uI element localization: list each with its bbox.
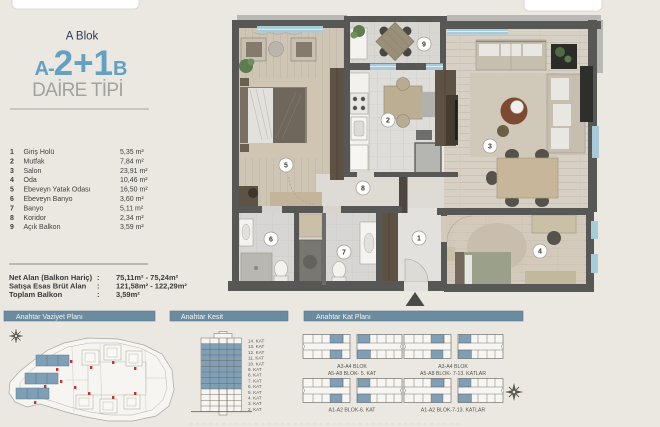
- svg-text:7. KAT: 7. KAT: [248, 378, 262, 383]
- svg-text:3: 3: [488, 143, 492, 150]
- svg-text:5,11 m²: 5,11 m²: [120, 205, 144, 212]
- svg-text:Banyo: Banyo: [24, 205, 44, 212]
- svg-text:Anahtar Vaziyet Planı: Anahtar Vaziyet Planı: [16, 314, 83, 321]
- svg-text:5,35 m²: 5,35 m²: [120, 149, 144, 156]
- svg-text:DAİRE TİPİ: DAİRE TİPİ: [32, 80, 123, 101]
- svg-text:A5-A8 BLOK- 7-13. KATLAR: A5-A8 BLOK- 7-13. KATLAR: [420, 371, 486, 377]
- svg-text:2: 2: [10, 158, 14, 165]
- svg-text:23,91 m²: 23,91 m²: [120, 168, 148, 175]
- svg-text:8: 8: [10, 215, 14, 222]
- svg-text:2: 2: [386, 117, 390, 124]
- svg-text:A1-A2 BLOK-6. KAT: A1-A2 BLOK-6. KAT: [329, 408, 377, 414]
- svg-text:Anahtar Kat Planı: Anahtar Kat Planı: [316, 314, 371, 321]
- svg-text:7: 7: [10, 205, 14, 212]
- svg-text:10. KAT: 10. KAT: [248, 361, 264, 366]
- svg-text:Oda: Oda: [24, 177, 37, 184]
- svg-text:16,50 m²: 16,50 m²: [120, 187, 148, 194]
- svg-text:1: 1: [417, 235, 421, 242]
- svg-text:6: 6: [10, 196, 14, 203]
- svg-text:7: 7: [342, 249, 346, 256]
- svg-text:6. KAT: 6. KAT: [248, 384, 262, 389]
- svg-text:9: 9: [10, 224, 14, 231]
- svg-text:8. KAT: 8. KAT: [248, 373, 262, 378]
- svg-text:5. KAT: 5. KAT: [248, 390, 262, 395]
- svg-text:Anahtar Kesit: Anahtar Kesit: [181, 314, 223, 321]
- svg-text:5: 5: [10, 187, 14, 194]
- svg-text:Salon: Salon: [24, 168, 42, 175]
- svg-text:1: 1: [10, 149, 14, 156]
- svg-text:7,84 m²: 7,84 m²: [120, 158, 144, 165]
- svg-text:A Blok: A Blok: [66, 31, 99, 43]
- svg-text:5: 5: [284, 162, 288, 169]
- svg-text::: :: [97, 290, 100, 299]
- svg-text:4: 4: [538, 248, 542, 255]
- svg-text:A5-A8 BLOK- 5. KAT: A5-A8 BLOK- 5. KAT: [328, 371, 377, 377]
- svg-text:13. KAT: 13. KAT: [248, 344, 264, 349]
- svg-text:3. KAT: 3. KAT: [248, 401, 262, 406]
- svg-text:Koridor: Koridor: [24, 215, 47, 222]
- svg-text:4. KAT: 4. KAT: [248, 396, 262, 401]
- svg-text:A1-A2 BLOK-7-13. KATLAR: A1-A2 BLOK-7-13. KATLAR: [421, 408, 486, 414]
- svg-text:Açık Balkon: Açık Balkon: [24, 224, 61, 231]
- svg-text:3,60 m²: 3,60 m²: [120, 196, 144, 203]
- svg-text:6: 6: [269, 236, 273, 243]
- svg-text:10,46 m²: 10,46 m²: [120, 177, 148, 184]
- svg-text:4: 4: [10, 177, 14, 184]
- svg-text:8: 8: [361, 185, 365, 192]
- svg-text:9: 9: [422, 41, 426, 48]
- svg-text:Ebeveyn Yatak Odası: Ebeveyn Yatak Odası: [24, 187, 91, 194]
- svg-text:2,34 m²: 2,34 m²: [120, 215, 144, 222]
- svg-text:3,59m²: 3,59m²: [116, 290, 140, 299]
- svg-text:11. KAT: 11. KAT: [248, 356, 264, 361]
- svg-text:9. KAT: 9. KAT: [248, 367, 262, 372]
- svg-text:Ebeveyn Banyo: Ebeveyn Banyo: [24, 196, 73, 203]
- svg-text:14. KAT: 14. KAT: [248, 339, 264, 344]
- svg-text:3,59 m²: 3,59 m²: [120, 224, 144, 231]
- svg-text:3: 3: [10, 168, 14, 175]
- svg-text:Giriş Holü: Giriş Holü: [24, 149, 55, 156]
- svg-text:A3-A4 BLOK: A3-A4 BLOK: [337, 364, 367, 370]
- svg-text:Mutfak: Mutfak: [24, 158, 46, 165]
- svg-text:Toplam Balkon: Toplam Balkon: [9, 290, 63, 299]
- svg-text:2. KAT: 2. KAT: [248, 407, 262, 412]
- svg-text:12. KAT: 12. KAT: [248, 350, 264, 355]
- svg-text:A3-A4 BLOK: A3-A4 BLOK: [438, 364, 468, 370]
